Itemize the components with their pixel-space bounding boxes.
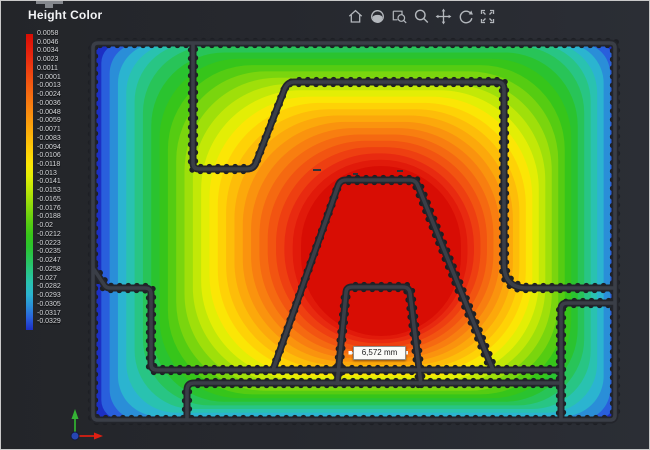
home-icon[interactable]: [347, 8, 364, 25]
colorbar-label: -0.0036: [37, 100, 81, 109]
colorbar-label: 0.0023: [37, 56, 81, 65]
view-toolbar: [347, 8, 496, 25]
page-title: Height Color: [28, 8, 102, 22]
colorbar-label: -0.0141: [37, 178, 81, 187]
colorbar-label: -0.0024: [37, 91, 81, 100]
colorbar-label: 0.0011: [37, 65, 81, 74]
fit-view-icon[interactable]: [479, 8, 496, 25]
measurement-label[interactable]: 6,572 mm: [353, 346, 406, 360]
colorbar-label: -0.0165: [37, 196, 81, 205]
colorbar-label: -0.0282: [37, 283, 81, 292]
colorbar-label: -0.0083: [37, 135, 81, 144]
colorbar-label: 0.0058: [37, 30, 81, 39]
colorbar-labels: 0.00580.00460.00340.00230.0011-0.0001-0.…: [37, 30, 81, 327]
colorbar-label: -0.0329: [37, 318, 81, 327]
colorbar-label: -0.0094: [37, 144, 81, 153]
colorbar-label: -0.0118: [37, 161, 81, 170]
axis-triad: [59, 405, 109, 447]
colorbar-label: -0.0293: [37, 292, 81, 301]
colorbar-label: -0.0153: [37, 187, 81, 196]
zoom-window-icon[interactable]: [391, 8, 408, 25]
colorbar-label: -0.0188: [37, 213, 81, 222]
app-window: Height Color: [0, 0, 650, 450]
height-bands: [93, 43, 615, 420]
colorbar-label: -0.027: [37, 275, 81, 284]
viewport-3d[interactable]: [1, 1, 650, 450]
dimension-endpoint-left: [349, 351, 353, 355]
z-axis-origin: [71, 432, 79, 440]
colorbar-label: -0.0059: [37, 117, 81, 126]
colorbar-label: -0.0258: [37, 266, 81, 275]
colorbar-label: -0.0071: [37, 126, 81, 135]
rotate-icon[interactable]: [457, 8, 474, 25]
pan-icon[interactable]: [435, 8, 452, 25]
colorbar-label: -0.0212: [37, 231, 81, 240]
orbit-view-icon[interactable]: [369, 8, 386, 25]
colorbar-label: -0.0235: [37, 248, 81, 257]
colorbar-label: -0.0305: [37, 301, 81, 310]
colorbar-label: 0.0034: [37, 47, 81, 56]
colorbar-label: -0.02: [37, 222, 81, 231]
colorbar-label: -0.0013: [37, 82, 81, 91]
zoom-icon[interactable]: [413, 8, 430, 25]
colorbar-label: -0.0106: [37, 152, 81, 161]
colorbar-label: -0.0247: [37, 257, 81, 266]
colorbar-gradient: [26, 34, 33, 330]
colorbar-label: -0.0317: [37, 310, 81, 319]
